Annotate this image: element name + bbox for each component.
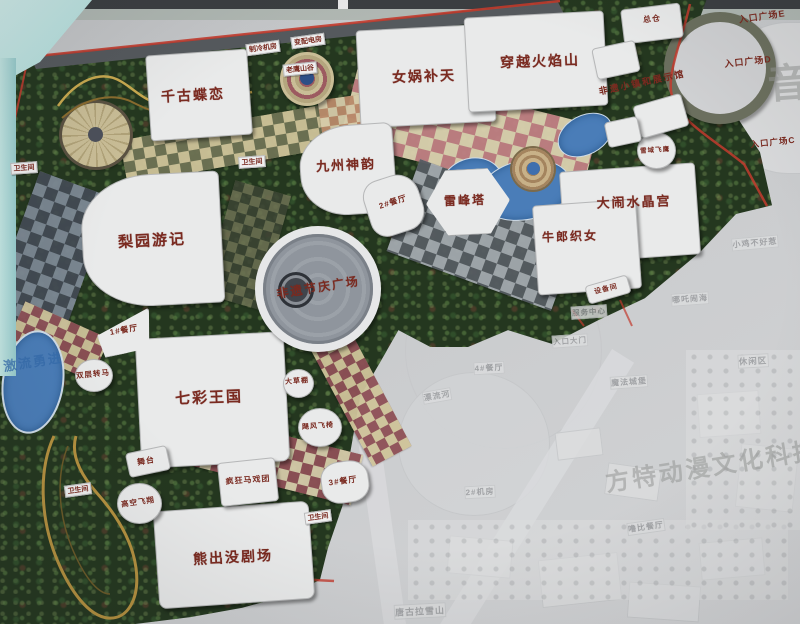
- building-zongcang: 总仓: [642, 13, 661, 26]
- facility-shebeijian: 设备间: [593, 281, 619, 297]
- watermark-yin: 音: [766, 50, 800, 111]
- restaurant-3: 3#餐厅: [328, 474, 358, 489]
- attraction-jiuzhou-shenyun: 九州神韵: [316, 153, 377, 175]
- pavilion-dacaopeng: 大草棚: [285, 375, 310, 387]
- toilet-1: 卫生间: [10, 161, 38, 175]
- attraction-nvwa-butian: 女娲补天: [392, 65, 457, 87]
- attraction-fengkuang-maxituan: 疯狂马戏团: [225, 473, 271, 487]
- ghost-piaoliuhe: 漂流河: [422, 387, 453, 405]
- stage-wutai: 舞台: [136, 454, 156, 468]
- labels-layer: 千古蝶恋女娲补天穿越火焰山九州神韵雷峰塔大闹水晶宫牛郎织女梨园游记非遗节庆广场七…: [0, 0, 800, 624]
- ghost-xiaoji-buhaore: 小鸡不好惹: [731, 234, 779, 251]
- attraction-liyuan-youji: 梨园游记: [117, 228, 186, 253]
- ghost-lubi-canting: 噜比餐厅: [626, 518, 665, 536]
- attraction-danao-shuijinggong: 大闹水晶宫: [596, 190, 672, 212]
- ride-jufeng-feiyi: 飓风飞椅: [302, 420, 335, 432]
- ghost-xiuxianqu: 休闲区: [737, 353, 768, 369]
- entrance-plaza-c: 入口广场C: [750, 134, 796, 151]
- ride-gaokong-feixiang: 高空飞翔: [120, 494, 155, 510]
- watermark-fangte-donman: 方特动漫文化科技: [603, 430, 800, 498]
- toilet-2: 卫生间: [238, 155, 266, 169]
- attraction-qiangu-dielian: 千古蝶恋: [161, 83, 226, 106]
- restaurant-2: 2#餐厅: [378, 192, 409, 211]
- ghost-rukou-damen: 入口大门: [552, 333, 589, 348]
- ride-xueyu-feiying: 雪域飞鹰: [640, 143, 671, 155]
- ghost-nezha-naohai: 哪吒闹海: [671, 291, 710, 307]
- ghost-jifang-2: 2#机房: [464, 485, 496, 500]
- ride-jiliu-yongjin: 激流勇进: [2, 347, 64, 375]
- attraction-leifengta: 雷峰塔: [444, 191, 487, 209]
- toilet-3: 卫生间: [64, 482, 92, 498]
- attraction-qicai-wangguo: 七彩王国: [175, 385, 244, 408]
- attraction-xiongchumo-juchang: 熊出没剧场: [193, 545, 274, 569]
- facility-bianpeidian: 变配电房: [290, 33, 325, 50]
- facility-zhileng-jifang: 制冷机房: [245, 40, 280, 57]
- attraction-chuanyue-huoyanshan: 穿越火焰山: [500, 50, 581, 73]
- ride-laoying-shangu: 老鹰山谷: [282, 61, 317, 76]
- entrance-plaza-e: 入口广场E: [738, 6, 786, 25]
- ghost-tanggula-xueshan: 唐古拉雪山: [394, 602, 447, 620]
- ride-shuangceng-zhuanma: 双层转马: [76, 367, 111, 381]
- attraction-niulang-zhinv: 牛郎织女: [542, 227, 599, 246]
- restaurant-1: 1#餐厅: [109, 322, 139, 338]
- toilet-4: 卫生间: [304, 509, 332, 525]
- area-feiyi-town: 非遗小镇和展示馆: [598, 66, 687, 97]
- theme-park-map-photo: 千古蝶恋女娲补天穿越火焰山九州神韵雷峰塔大闹水晶宫牛郎织女梨园游记非遗节庆广场七…: [0, 0, 800, 624]
- ghost-canting-4: 4#餐厅: [473, 361, 505, 376]
- ghost-fuwu-zhongxin: 服务中心: [571, 304, 608, 319]
- plaza-feiyi-jieqing: 非遗节庆广场: [275, 272, 361, 302]
- ghost-mofa-chengbao: 魔法城堡: [610, 374, 649, 390]
